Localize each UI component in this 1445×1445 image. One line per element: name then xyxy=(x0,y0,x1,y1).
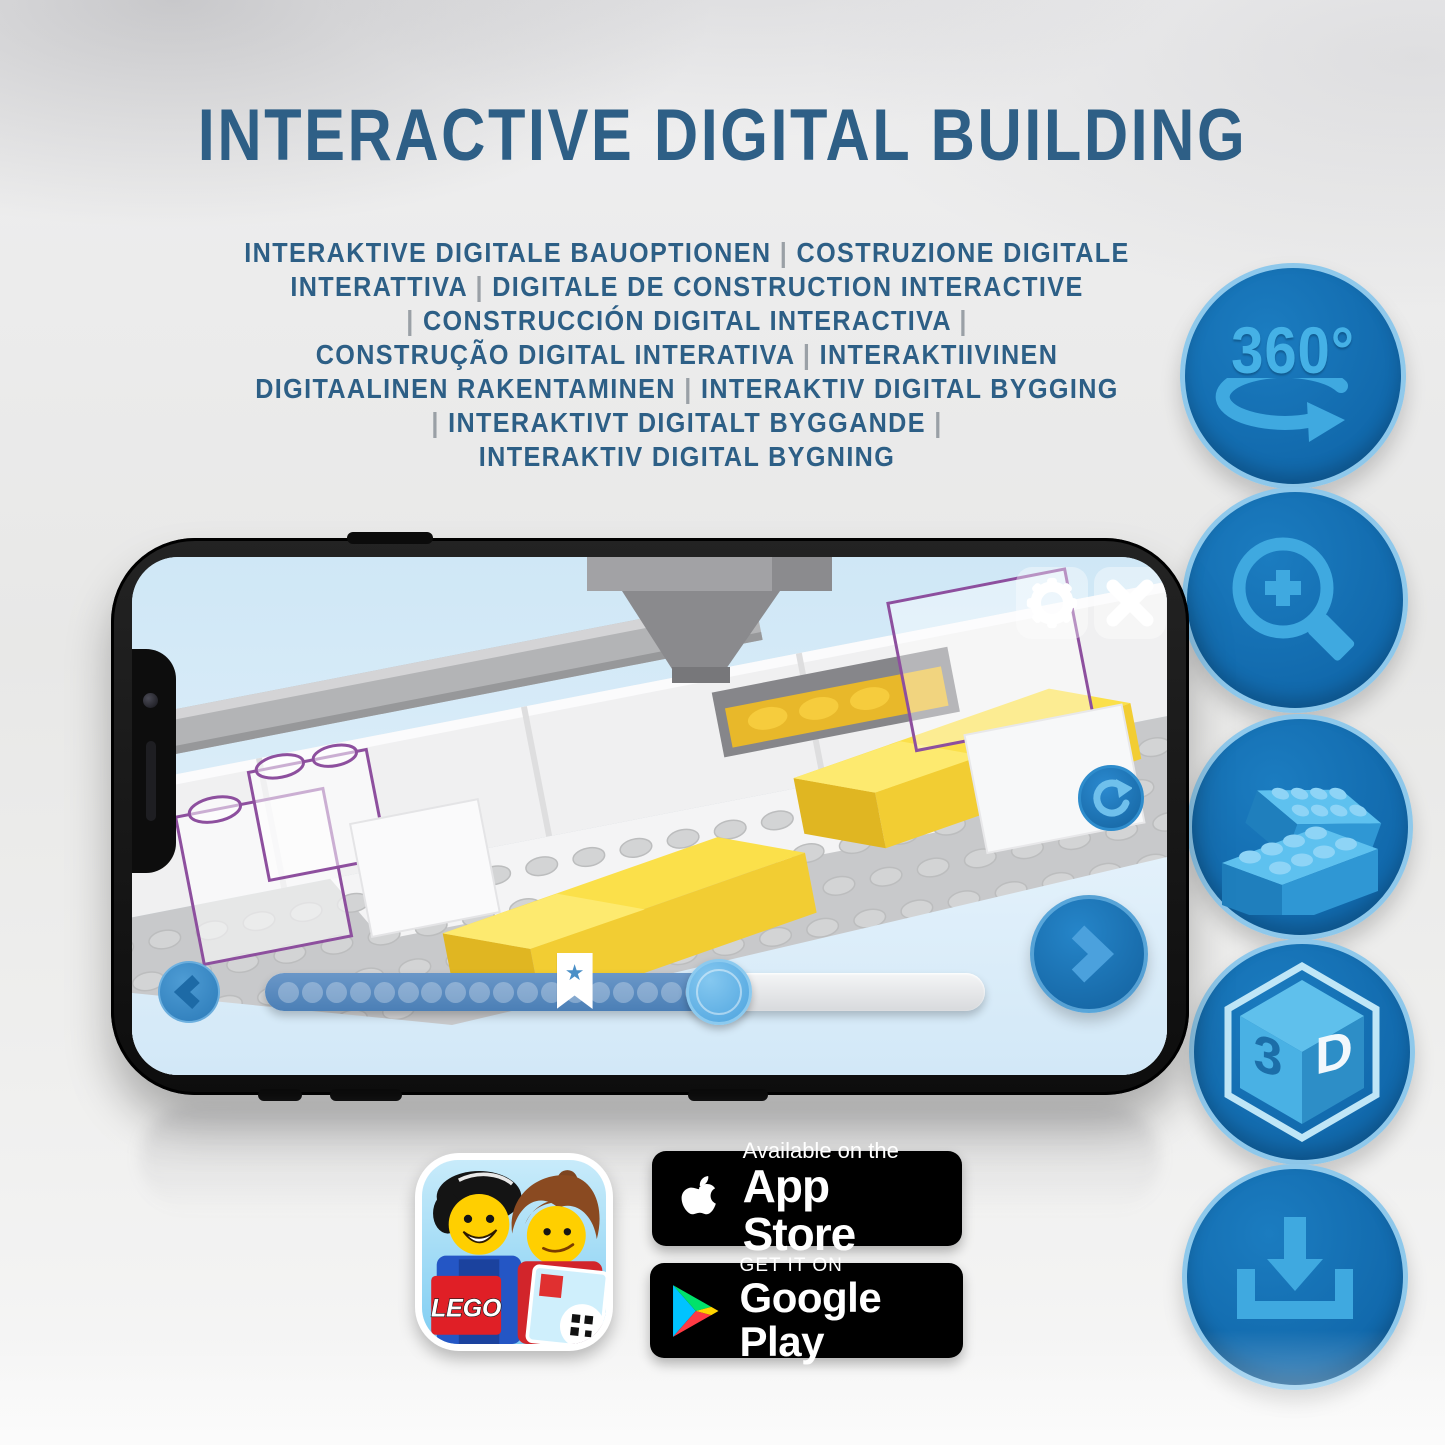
rotation-arrow-icon xyxy=(1208,378,1378,458)
slider-step-dot xyxy=(326,982,347,1003)
separator: | xyxy=(406,305,414,336)
subtitle-line: | CONSTRUCCIÓN DIGITAL INTERACTIVA | xyxy=(69,304,1306,338)
separator: | xyxy=(780,237,788,268)
slider-step-dot xyxy=(517,982,538,1003)
phone-notch xyxy=(132,649,176,873)
next-step-button[interactable] xyxy=(1030,895,1148,1013)
lego-logo-text: LEGO xyxy=(431,1295,501,1322)
phone-power-button xyxy=(347,532,433,544)
feature-zoom xyxy=(1182,487,1408,713)
cube-3-label: 3 xyxy=(1254,1024,1283,1089)
phone-volume-button xyxy=(330,1089,402,1101)
subtitle-line: INTERAKTIV DIGITAL BYGNING xyxy=(69,440,1306,474)
slider-step-dot xyxy=(302,982,323,1003)
feature-brick xyxy=(1187,714,1413,940)
subtitle-line: DIGITAALINEN RAKENTAMINEN | INTERAKTIV D… xyxy=(69,372,1306,406)
separator: | xyxy=(934,407,942,438)
slider-step-dot xyxy=(493,982,514,1003)
slider-thumb[interactable] xyxy=(686,959,752,1025)
separator: | xyxy=(476,271,484,302)
previous-step-button[interactable] xyxy=(158,961,220,1023)
digital-brick-icon xyxy=(1212,739,1388,915)
separator: | xyxy=(803,339,811,370)
slider-step-dot xyxy=(398,982,419,1003)
separator: | xyxy=(684,373,692,404)
lego-logo: LEGO xyxy=(431,1276,501,1335)
close-button[interactable] xyxy=(1094,567,1166,639)
lego-app-icon[interactable]: LEGO xyxy=(415,1153,613,1351)
feature-3d-view: 3 D xyxy=(1189,939,1415,1165)
slider-step-dot xyxy=(278,982,299,1003)
phone-volume-button xyxy=(688,1089,768,1101)
cube-d-label: D xyxy=(1315,1019,1353,1086)
speaker-slot xyxy=(146,741,156,821)
feature-360-rotation: 360° xyxy=(1180,263,1406,489)
subtitle-line: INTERAKTIVE DIGITALE BAUOPTIONEN | COSTR… xyxy=(69,236,1306,270)
slider-step-dot xyxy=(637,982,658,1003)
zoom-in-icon xyxy=(1220,525,1370,675)
app-screen: ★ xyxy=(132,557,1167,1075)
app-store-name: App Store xyxy=(743,1162,940,1259)
chevron-left-icon xyxy=(174,975,204,1009)
rotate-view-button[interactable] xyxy=(1078,765,1144,831)
separator: | xyxy=(431,407,439,438)
lego-app-artwork: LEGO xyxy=(422,1160,606,1344)
chevron-right-icon xyxy=(1063,924,1115,984)
separator: | xyxy=(959,305,967,336)
close-icon xyxy=(1106,579,1154,627)
google-play-icon xyxy=(672,1280,720,1342)
google-play-badge[interactable]: GET IT ON Google Play xyxy=(650,1263,963,1358)
phone-reflection xyxy=(140,1104,1160,1214)
phone-mute-switch xyxy=(258,1089,302,1101)
subtitle-line: CONSTRUÇÃO DIGITAL INTERATIVA | INTERAKT… xyxy=(69,338,1306,372)
page-title: INTERACTIVE DIGITAL BUILDING xyxy=(116,94,1330,177)
poster: INTERACTIVE DIGITAL BUILDING INTERAKTIVE… xyxy=(0,0,1445,1445)
rotate-icon xyxy=(1090,777,1132,819)
slider-step-dot xyxy=(613,982,634,1003)
camera-icon xyxy=(143,693,158,708)
subtitle-line: INTERATTIVA | DIGITALE DE CONSTRUCTION I… xyxy=(69,270,1306,304)
slider-step-dot xyxy=(350,982,371,1003)
settings-button[interactable] xyxy=(1016,567,1088,639)
subtitle-block: INTERAKTIVE DIGITALE BAUOPTIONEN | COSTR… xyxy=(0,236,1374,474)
slider-step-dot xyxy=(421,982,442,1003)
slider-step-dot xyxy=(445,982,466,1003)
google-play-tagline: GET IT ON xyxy=(740,1256,941,1276)
progress-slider[interactable]: ★ xyxy=(265,973,985,1011)
slider-fill xyxy=(265,973,719,1011)
apple-icon xyxy=(674,1168,723,1230)
slider-step-dot xyxy=(661,982,682,1003)
3d-cube-icon: 3 D xyxy=(1214,959,1390,1145)
phone-mockup: ★ xyxy=(111,538,1189,1095)
app-store-tagline: Available on the xyxy=(743,1139,940,1162)
gear-icon xyxy=(1026,577,1078,629)
google-play-name: Google Play xyxy=(740,1276,941,1364)
360-label: 360° xyxy=(1198,312,1388,388)
app-store-badge[interactable]: Available on the App Store xyxy=(652,1151,962,1246)
slider-step-dot xyxy=(469,982,490,1003)
slider-step-dot xyxy=(374,982,395,1003)
subtitle-line: | INTERAKTIVT DIGITALT BYGGANDE | xyxy=(69,406,1306,440)
